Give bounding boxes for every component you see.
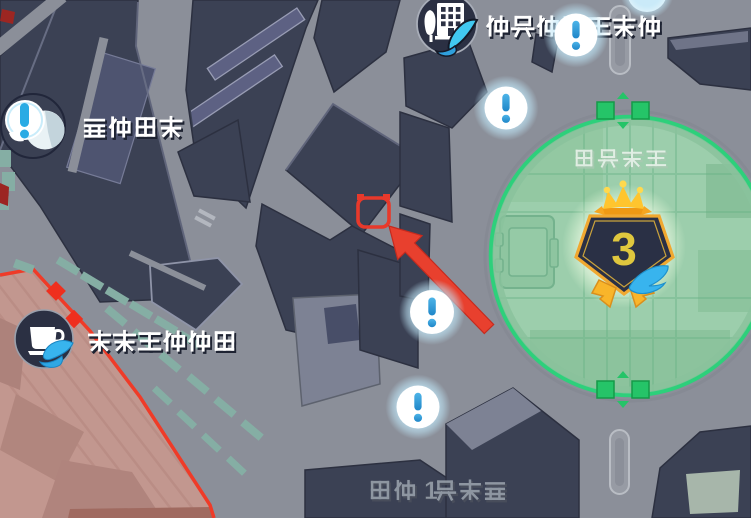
svg-text:3: 3 xyxy=(611,223,637,275)
svg-text:1: 1 xyxy=(424,477,438,505)
